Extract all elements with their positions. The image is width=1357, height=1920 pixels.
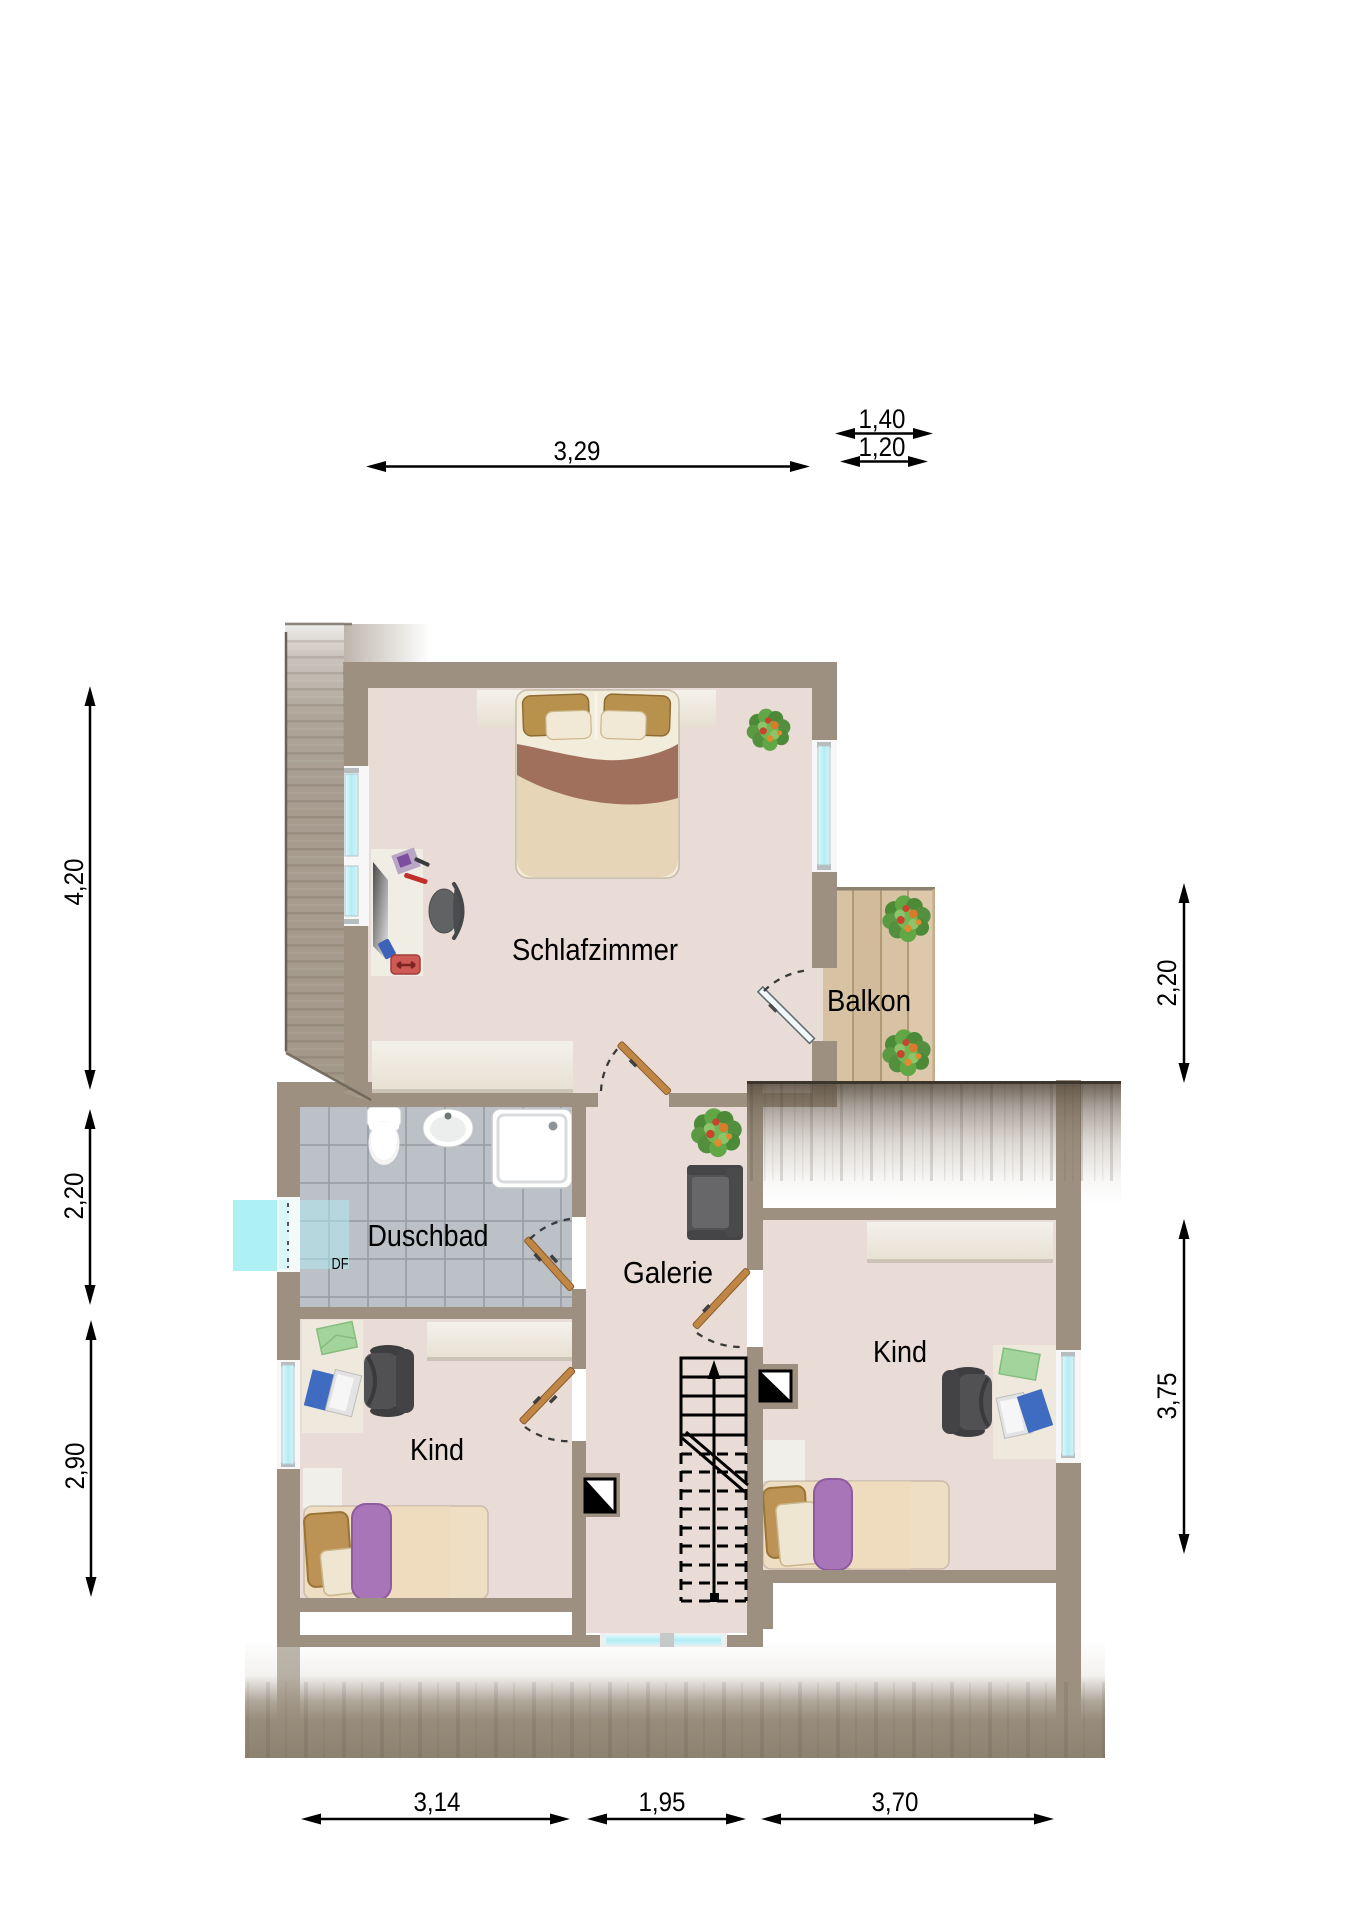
svg-text:3,14: 3,14	[414, 1787, 461, 1817]
svg-text:Galerie: Galerie	[623, 1255, 713, 1290]
svg-text:4,20: 4,20	[59, 859, 89, 906]
svg-text:2,20: 2,20	[59, 1173, 89, 1220]
svg-text:3,75: 3,75	[1152, 1373, 1182, 1420]
svg-text:3,29: 3,29	[554, 436, 601, 466]
svg-text:Kind: Kind	[410, 1432, 464, 1467]
svg-text:1,20: 1,20	[859, 432, 906, 462]
svg-text:1,40: 1,40	[859, 404, 906, 434]
svg-text:1,95: 1,95	[639, 1787, 686, 1817]
svg-text:2,20: 2,20	[1152, 960, 1182, 1007]
svg-text:Balkon: Balkon	[827, 983, 911, 1018]
svg-text:Kind: Kind	[873, 1334, 927, 1369]
svg-text:2,90: 2,90	[60, 1443, 90, 1490]
svg-text:Duschbad: Duschbad	[368, 1218, 489, 1253]
svg-text:3,70: 3,70	[872, 1787, 919, 1817]
svg-text:DF: DF	[332, 1256, 349, 1273]
svg-text:Schlafzimmer: Schlafzimmer	[512, 932, 678, 967]
